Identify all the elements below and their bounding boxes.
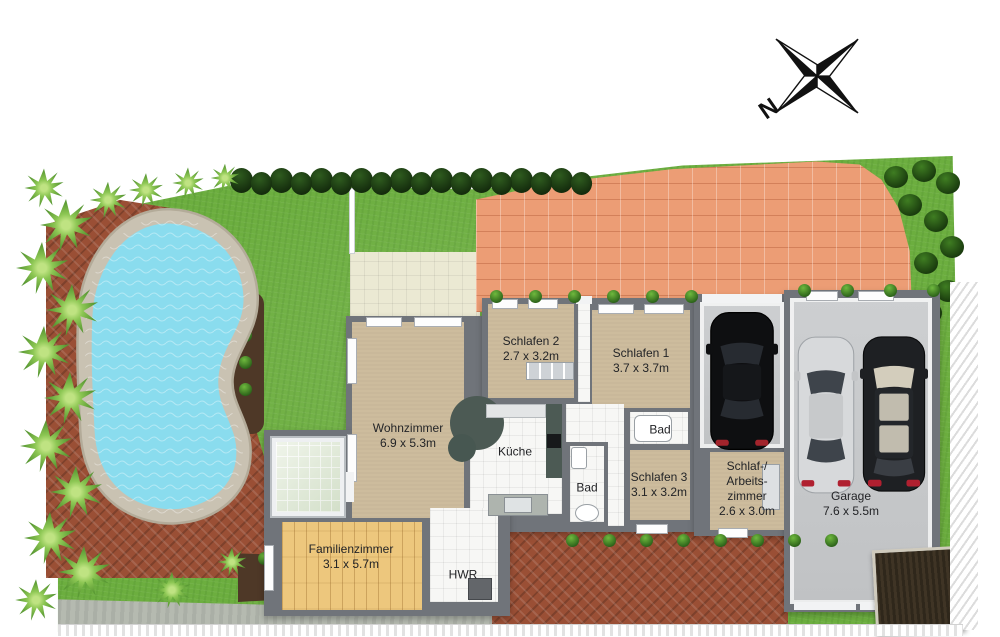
compass-rose: N bbox=[752, 16, 882, 148]
bush bbox=[936, 172, 960, 194]
conifer-tree bbox=[350, 168, 373, 193]
conifer-tree bbox=[270, 168, 293, 193]
conifer-tree bbox=[291, 172, 312, 195]
conifer-tree bbox=[331, 172, 352, 195]
room-name: Familienzimmer bbox=[309, 542, 394, 557]
room-dims: 7.6 x 5.5m bbox=[823, 504, 879, 519]
room-label-bad-mitte: Bad bbox=[576, 481, 597, 496]
room-name: Arbeits- bbox=[719, 474, 775, 489]
room-name: Bad bbox=[649, 423, 670, 438]
car-dark bbox=[860, 334, 928, 494]
bush bbox=[924, 210, 948, 232]
room-dims: 3.1 x 3.2m bbox=[631, 485, 688, 500]
shrub bbox=[566, 534, 579, 547]
pool bbox=[70, 205, 270, 535]
conifer-tree bbox=[411, 172, 432, 195]
shrub bbox=[490, 290, 503, 303]
room-dims: 2.6 x 3.0m bbox=[719, 504, 775, 519]
fence-bottom bbox=[58, 624, 963, 636]
shrub bbox=[927, 284, 940, 297]
room-name: Wohnzimmer bbox=[373, 421, 443, 436]
bathroom-sink bbox=[571, 447, 587, 469]
room-wohnzimmer bbox=[352, 322, 464, 518]
garage-door bbox=[794, 602, 856, 610]
oven bbox=[547, 434, 561, 448]
floorplan-scene: Wohnzimmer 6.9 x 5.3m Küche Schlafen 2 2… bbox=[0, 0, 1000, 637]
shrub bbox=[529, 290, 542, 303]
fence-right bbox=[950, 282, 978, 630]
room-name: Schlafen 2 bbox=[503, 334, 560, 349]
conifer-tree bbox=[390, 168, 413, 193]
conifer-tree bbox=[451, 172, 472, 195]
room-label-hwr: HWR bbox=[449, 568, 478, 583]
shrub bbox=[640, 534, 653, 547]
wall-shrubs bbox=[798, 284, 940, 297]
shrub bbox=[714, 534, 727, 547]
bush bbox=[914, 252, 938, 274]
bush bbox=[884, 166, 908, 188]
window bbox=[644, 304, 684, 314]
room-label-kueche: Küche bbox=[498, 445, 532, 460]
car-black bbox=[706, 310, 778, 452]
conifer-tree bbox=[531, 172, 552, 195]
wintergarden-door bbox=[346, 472, 354, 502]
boundary-fence-segment bbox=[349, 188, 355, 254]
room-label-wohnzimmer: Wohnzimmer 6.9 x 5.3m bbox=[373, 421, 443, 451]
conifer-tree bbox=[510, 168, 533, 193]
palm-bush bbox=[15, 579, 57, 621]
room-label-garage: Garage 7.6 x 5.5m bbox=[823, 489, 879, 519]
shrub bbox=[607, 290, 620, 303]
room-dims: 3.7 x 3.7m bbox=[613, 361, 670, 376]
north-label: N bbox=[754, 93, 784, 125]
room-label-schlaf-arbeitszimmer: Schlaf-/ Arbeits- zimmer 2.6 x 3.0m bbox=[719, 459, 775, 519]
bush bbox=[912, 160, 936, 182]
carport-opening bbox=[702, 294, 782, 303]
window bbox=[598, 304, 634, 314]
entry-corridor bbox=[578, 304, 590, 402]
pool-water bbox=[85, 217, 250, 516]
kitchen-sink bbox=[504, 497, 532, 513]
conifer-tree bbox=[430, 168, 453, 193]
shrub bbox=[825, 534, 838, 547]
window bbox=[636, 524, 668, 534]
bush bbox=[940, 236, 964, 258]
room-label-schlafen2: Schlafen 2 2.7 x 3.2m bbox=[503, 334, 560, 364]
room-name: HWR bbox=[449, 568, 478, 583]
round-table bbox=[448, 434, 476, 462]
conifer-tree bbox=[310, 168, 333, 193]
room-dims: 6.9 x 5.3m bbox=[373, 436, 443, 451]
patio bbox=[350, 252, 480, 318]
room-name: Schlafen 1 bbox=[613, 346, 670, 361]
room-label-schlafen3: Schlafen 3 3.1 x 3.2m bbox=[631, 470, 688, 500]
room-label-bad-oben: Bad bbox=[649, 423, 670, 438]
wintergarden bbox=[272, 438, 344, 516]
room-label-schlafen1: Schlafen 1 3.7 x 3.7m bbox=[613, 346, 670, 376]
wardrobe bbox=[526, 362, 574, 380]
shrub bbox=[603, 534, 616, 547]
shrub bbox=[568, 290, 581, 303]
shrub bbox=[798, 284, 811, 297]
wall-shrubs bbox=[490, 290, 698, 303]
shrub bbox=[685, 290, 698, 303]
conifer-tree bbox=[470, 168, 493, 193]
bush bbox=[898, 194, 922, 216]
room-name: Schlaf-/ bbox=[719, 459, 775, 474]
room-label-familienzimmer: Familienzimmer 3.1 x 5.7m bbox=[309, 542, 394, 572]
kitchen-cabinets bbox=[486, 404, 546, 418]
shrub bbox=[677, 534, 690, 547]
conifer-tree bbox=[251, 172, 272, 195]
window bbox=[414, 317, 462, 327]
room-name: Küche bbox=[498, 445, 532, 460]
shrub bbox=[841, 284, 854, 297]
window bbox=[264, 545, 274, 591]
shrub bbox=[751, 534, 764, 547]
shrub bbox=[884, 284, 897, 297]
room-name: zimmer bbox=[719, 489, 775, 504]
conifer-tree bbox=[491, 172, 512, 195]
toilet bbox=[575, 504, 599, 522]
window bbox=[347, 338, 357, 384]
room-dims: 3.1 x 5.7m bbox=[309, 557, 394, 572]
shrub bbox=[788, 534, 801, 547]
shrub bbox=[646, 290, 659, 303]
car-silver bbox=[794, 332, 858, 498]
room-name: Bad bbox=[576, 481, 597, 496]
conifer-tree bbox=[371, 172, 392, 195]
room-name: Garage bbox=[823, 489, 879, 504]
path-shrubs bbox=[566, 534, 838, 547]
conifer-tree bbox=[550, 168, 573, 193]
conifer-hedge bbox=[230, 168, 590, 193]
room-dims: 2.7 x 3.2m bbox=[503, 349, 560, 364]
palm-bush bbox=[25, 169, 64, 208]
conifer-tree bbox=[571, 172, 592, 195]
room-name: Schlafen 3 bbox=[631, 470, 688, 485]
window bbox=[366, 317, 402, 327]
